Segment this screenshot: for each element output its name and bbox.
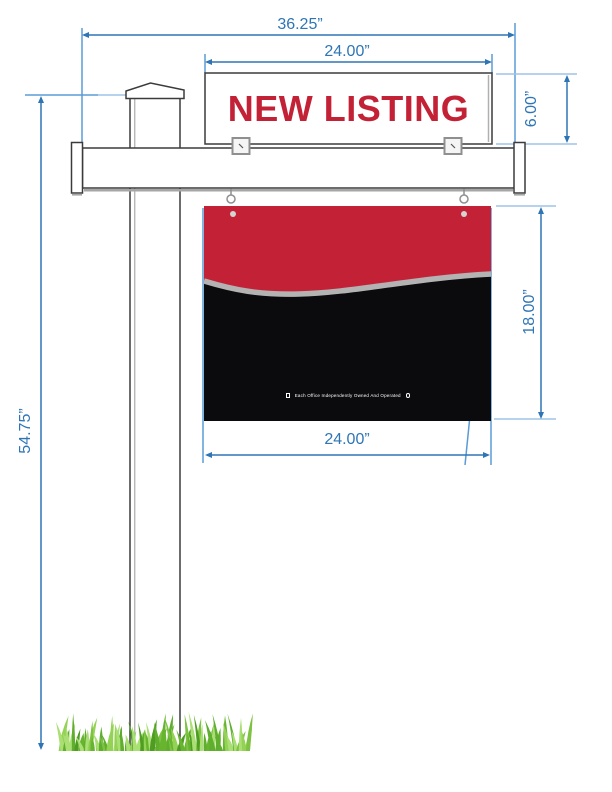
post [130,97,180,748]
dim-rider-height [564,75,570,143]
main-sign-panel [204,206,491,421]
realtor-icon [286,393,290,398]
rider-sign-text: NEW LISTING [205,73,492,144]
post-cap [126,83,184,99]
dim-overall-height [38,96,44,750]
label-panel-width: 24.00” [307,431,387,449]
equal-housing-icon [406,393,411,398]
grommet-left [230,211,236,217]
dim-panel-width [205,452,490,458]
grommet-right [461,211,467,217]
arm-end-cap-left [72,143,83,195]
disclaimer-text: Each Office Independently Owned And Oper… [295,393,401,398]
dim-panel-height [538,207,544,419]
sign-spec-diagram: 36.25” 24.00” 6.00” 18.00” 24.00” 54.75”… [0,0,612,792]
panel-disclaimer: Each Office Independently Owned And Oper… [282,391,414,400]
label-overall-width: 36.25” [260,16,340,34]
label-overall-height: 54.75” [17,396,33,466]
label-rider-width: 24.00” [307,43,387,61]
label-rider-height: 6.00” [523,79,539,139]
arm-end-cap-right [514,143,525,195]
label-panel-height: 18.00” [521,282,537,342]
